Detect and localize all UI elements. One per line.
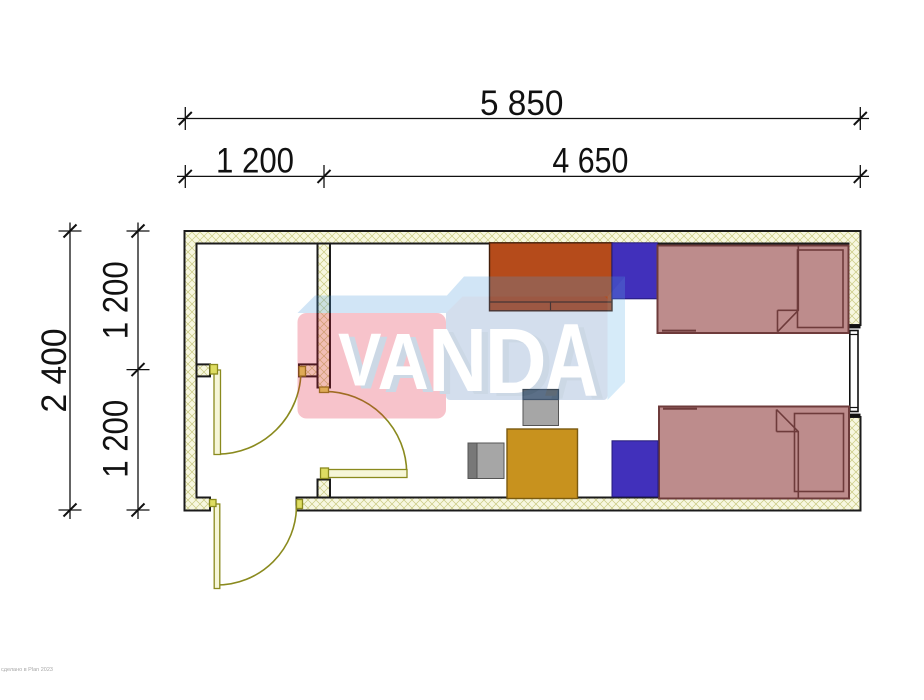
svg-text:сделано в Plan 2023: сделано в Plan 2023: [1, 667, 53, 673]
svg-text:2 400: 2 400: [35, 329, 74, 413]
svg-text:1 200: 1 200: [97, 400, 136, 478]
svg-text:1 200: 1 200: [97, 261, 136, 339]
svg-text:5 850: 5 850: [480, 84, 564, 123]
svg-text:N: N: [434, 313, 493, 413]
svg-text:4 650: 4 650: [552, 142, 628, 181]
svg-text:A: A: [549, 306, 605, 422]
svg-text:D: D: [491, 313, 553, 417]
svg-text:1 200: 1 200: [216, 142, 294, 181]
svg-text:V: V: [344, 320, 388, 404]
svg-text:A: A: [384, 320, 435, 410]
